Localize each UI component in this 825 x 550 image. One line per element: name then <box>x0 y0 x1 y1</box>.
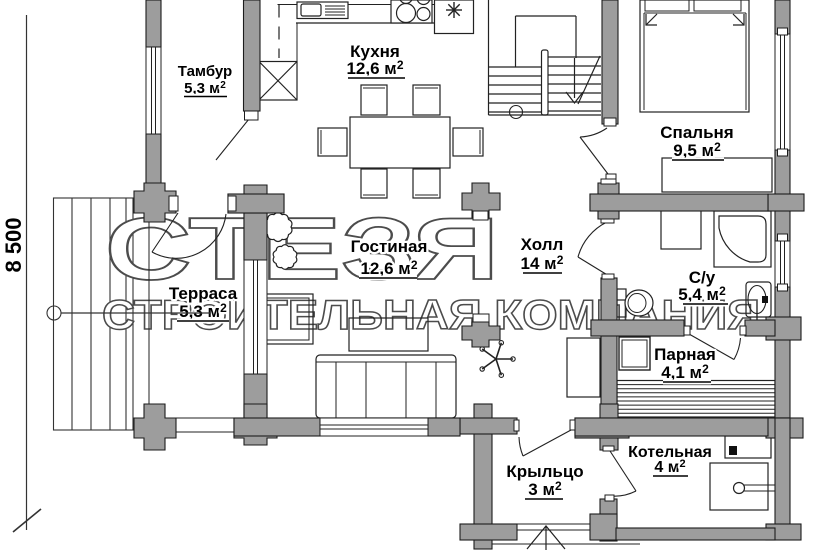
svg-text:4,1 м2: 4,1 м2 <box>661 362 709 382</box>
svg-text:5,4 м2: 5,4 м2 <box>678 284 726 304</box>
svg-text:Гостиная: Гостиная <box>351 237 428 256</box>
svg-text:Холл: Холл <box>521 235 564 254</box>
svg-text:12,6 м2: 12,6 м2 <box>346 58 403 78</box>
svg-text:Спальня: Спальня <box>660 123 733 142</box>
svg-text:Крыльцо: Крыльцо <box>506 462 583 481</box>
svg-text:Тамбур: Тамбур <box>178 63 232 80</box>
svg-text:5,3 м2: 5,3 м2 <box>179 301 227 321</box>
svg-text:Терраса: Терраса <box>169 284 238 303</box>
svg-text:8 500: 8 500 <box>1 217 26 272</box>
svg-text:9,5 м2: 9,5 м2 <box>673 140 721 160</box>
svg-text:12,6 м2: 12,6 м2 <box>360 258 417 278</box>
